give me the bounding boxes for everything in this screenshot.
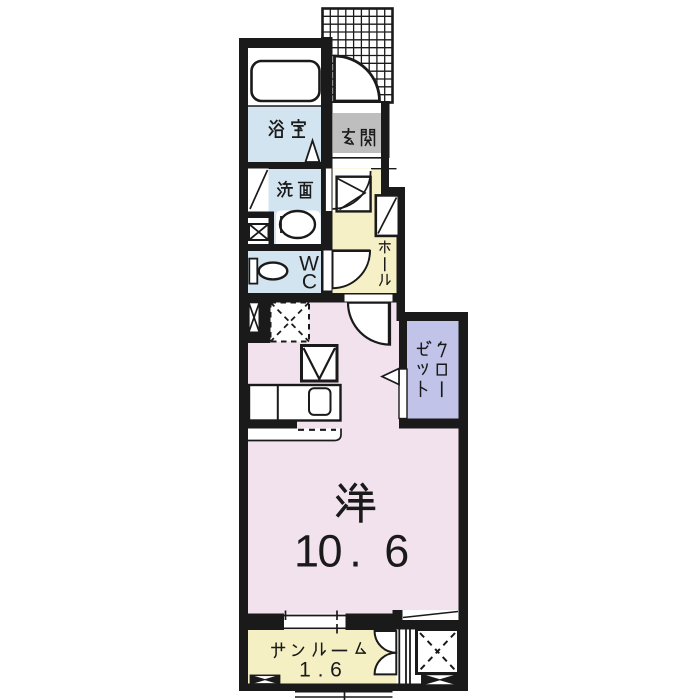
svg-text:6: 6 (330, 659, 342, 682)
svg-text:6: 6 (384, 526, 409, 577)
svg-text:.: . (349, 526, 362, 577)
svg-text:.: . (318, 659, 324, 682)
svg-text:1: 1 (294, 526, 319, 577)
svg-text:1: 1 (299, 659, 311, 682)
svg-text:C: C (302, 271, 317, 294)
svg-text:0: 0 (317, 526, 342, 577)
